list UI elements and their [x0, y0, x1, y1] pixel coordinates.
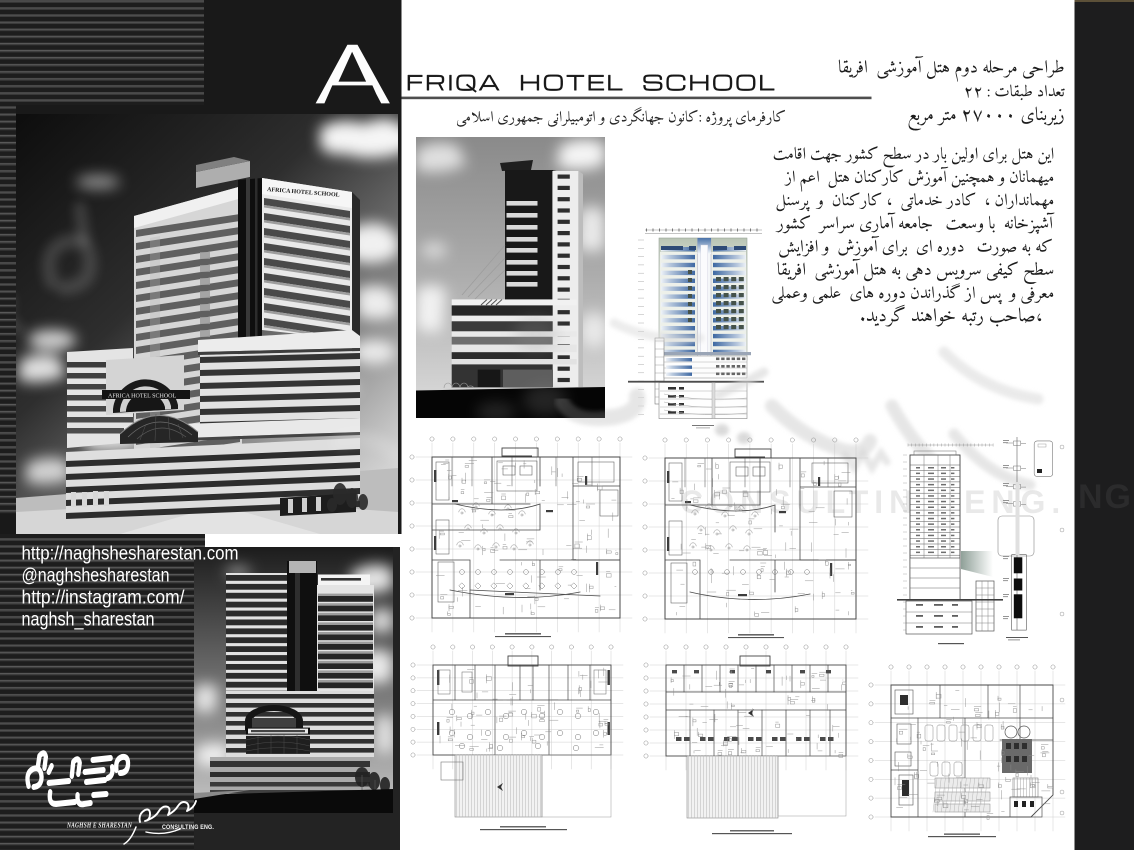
svg-text:NG.: NG. — [1078, 478, 1134, 516]
svg-text:CONSULTING ENG.: CONSULTING ENG. — [162, 824, 214, 831]
svg-text:CONSULTING ENG.: CONSULTING ENG. — [680, 484, 1066, 520]
svg-text:http://instagram.com/: http://instagram.com/ — [22, 587, 186, 609]
svg-text:NAGHSH E SHARESTAN: NAGHSH E SHARESTAN — [66, 822, 132, 830]
svg-text:naghsh_sharestan: naghsh_sharestan — [22, 609, 155, 631]
svg-text:AFRICA HOTEL SCHOOL: AFRICA HOTEL SCHOOL — [108, 394, 176, 400]
svg-text:@naghshesharestan: @naghshesharestan — [22, 565, 170, 587]
svg-text:http://naghshesharestan.com: http://naghshesharestan.com — [22, 543, 239, 565]
